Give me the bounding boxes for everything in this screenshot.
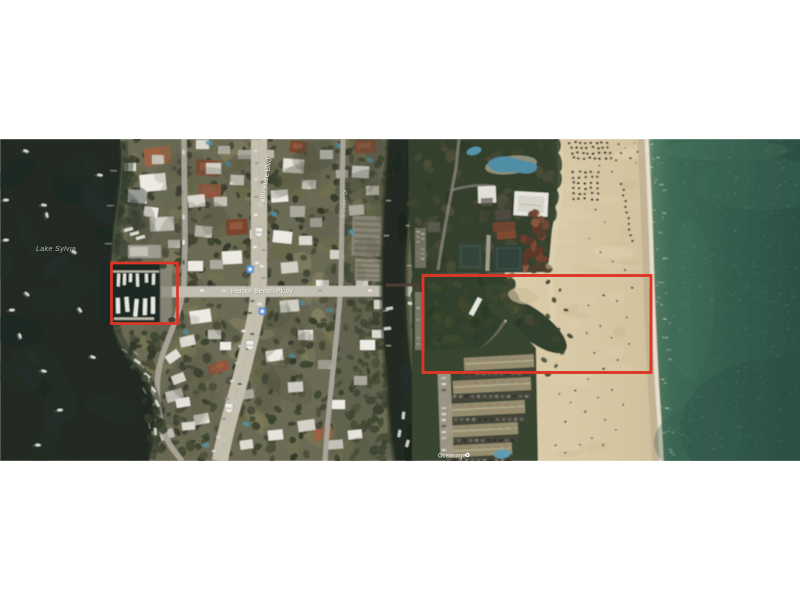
svg-text:Lake Sylvia: Lake Sylvia <box>36 246 76 253</box>
svg-text:Harbor Beach Pkwy: Harbor Beach Pkwy <box>231 288 293 295</box>
svg-text:Oceanage: Oceanage <box>438 454 466 460</box>
